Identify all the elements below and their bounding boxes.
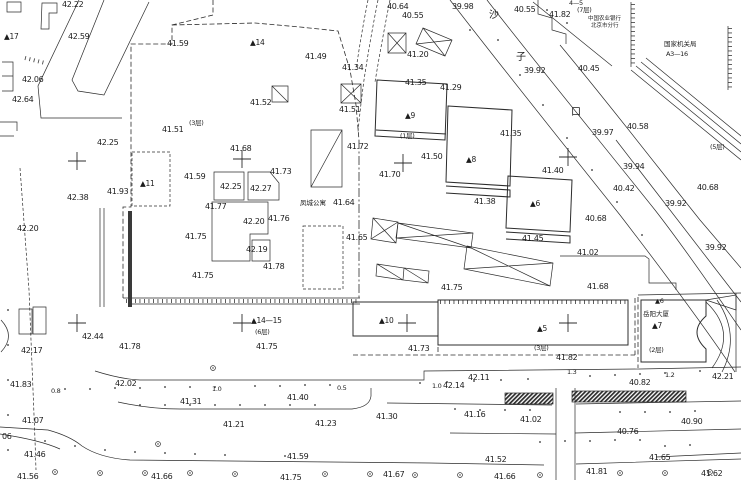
elevation-label: 41.59 xyxy=(184,173,205,181)
elevation-label: 41.46 xyxy=(24,451,45,459)
distance-label: 1.2 xyxy=(665,372,674,379)
building-name-label: 国家机关局 xyxy=(664,41,697,48)
elevation-label: 41.20 xyxy=(407,51,428,59)
elevation-label: 41.82 xyxy=(556,354,577,362)
elevation-label: 41.75 xyxy=(280,474,301,480)
elevation-label: 42.21 xyxy=(712,373,733,381)
elevation-label: 41.75 xyxy=(192,272,213,280)
elevation-label: 41.21 xyxy=(223,421,244,429)
elevation-label: 42.17 xyxy=(21,347,42,355)
elevation-label: 41.93 xyxy=(107,188,128,196)
elevation-label: 40.42 xyxy=(613,185,634,193)
elevation-label: 41.40 xyxy=(287,394,308,402)
elevation-label: 39.94 xyxy=(623,163,644,171)
street-name-char: 沙 xyxy=(489,11,499,21)
elevation-label: 41.16 xyxy=(464,411,485,419)
elevation-label: 39.92 xyxy=(705,244,726,252)
elevation-label: 41.29 xyxy=(440,84,461,92)
elevation-label: 41.73 xyxy=(408,345,429,353)
elevation-label: 41.50 xyxy=(421,153,442,161)
building-number-label: ▲7 xyxy=(652,322,662,330)
elevation-label: 41.23 xyxy=(315,420,336,428)
elevation-label: 42.19 xyxy=(246,246,267,254)
elevation-label: 41.02 xyxy=(577,249,598,257)
distance-label: 1.3 xyxy=(567,369,576,376)
elevation-label: 41.40 xyxy=(542,167,563,175)
building-number-label: ▲6 xyxy=(655,298,664,305)
floor-count-label: (3层) xyxy=(534,345,549,352)
elevation-label: 41.75 xyxy=(441,284,462,292)
floor-count-label: (6层) xyxy=(255,329,270,336)
elevation-label: 41.02 xyxy=(520,416,541,424)
survey-map-canvas: 42.2242.5941.5942.0642.6442.2541.51(3层)▲… xyxy=(0,0,741,480)
elevation-label: 42.02 xyxy=(115,380,136,388)
elevation-label: 42.20 xyxy=(17,225,38,233)
elevation-label: 41.78 xyxy=(263,263,284,271)
elevation-label: 41.65 xyxy=(346,234,367,242)
elevation-label: 41.78 xyxy=(119,343,140,351)
elevation-label: 39.92 xyxy=(524,67,545,75)
elevation-label: 42.14 xyxy=(443,382,464,390)
building-name-label: 中国农业银行 xyxy=(588,17,621,23)
distance-label: 1.0 xyxy=(212,386,221,393)
elevation-label: 40.90 xyxy=(681,418,702,426)
elevation-label: 42.64 xyxy=(12,96,33,104)
elevation-label: 41.31 xyxy=(180,398,201,406)
elevation-label: 40.58 xyxy=(627,123,648,131)
elevation-label: 41.67 xyxy=(383,471,404,479)
elevation-label: 41.49 xyxy=(305,53,326,61)
elevation-label: 41.64 xyxy=(333,199,354,207)
floor-count-label: (7层) xyxy=(577,7,592,14)
floor-count-label: (3层) xyxy=(189,120,204,127)
distance-label: 0.5 xyxy=(337,385,346,392)
elevation-label: 41.34 xyxy=(342,64,363,72)
elevation-label: 42.20 xyxy=(243,218,264,226)
street-name-char: 口 xyxy=(571,108,581,118)
building-number-label: ▲14 xyxy=(250,39,264,47)
elevation-label: 40.55 xyxy=(402,12,423,20)
elevation-label: 40.55 xyxy=(514,6,535,14)
elevation-label: 06 xyxy=(2,433,12,441)
building-name-label: 凤城公寓 xyxy=(300,200,326,207)
elevation-label: 42.38 xyxy=(67,194,88,202)
elevation-label: 41.83 xyxy=(10,381,31,389)
elevation-label: 40.68 xyxy=(585,215,606,223)
elevation-label: 41.70 xyxy=(379,171,400,179)
elevation-label: 41.30 xyxy=(376,413,397,421)
elevation-label: 41.45 xyxy=(522,235,543,243)
elevation-label: 41.52 xyxy=(250,99,271,107)
building-name-label: 岳阳大厦 xyxy=(643,311,669,318)
building-number-label: ▲9 xyxy=(405,112,415,120)
elevation-label: 42.27 xyxy=(250,185,271,193)
elevation-label: 41.68 xyxy=(230,145,251,153)
elevation-label: 41.81 xyxy=(586,468,607,476)
building-name-label: 北京市分行 xyxy=(591,24,619,30)
floor-count-label: (1层) xyxy=(400,133,415,140)
elevation-label: 42.06 xyxy=(22,76,43,84)
elevation-label: 40.64 xyxy=(387,3,408,11)
elevation-label: 42.25 xyxy=(220,183,241,191)
elevation-label: 41.35 xyxy=(500,130,521,138)
elevation-label: 41.65 xyxy=(649,454,670,462)
elevation-label: 41.59 xyxy=(167,40,188,48)
street-name-char: 子 xyxy=(516,53,526,63)
elevation-label: 41.66 xyxy=(151,473,172,480)
elevation-label: 42.44 xyxy=(82,333,103,341)
building-number-label: ▲11 xyxy=(140,180,154,188)
building-number-label: A3—16 xyxy=(666,51,688,58)
elevation-label: 40.68 xyxy=(697,184,718,192)
elevation-label: 41.77 xyxy=(205,203,226,211)
elevation-label: 41.52 xyxy=(485,456,506,464)
elevation-label: 41.75 xyxy=(185,233,206,241)
elevation-label: 41.35 xyxy=(405,79,426,87)
elevation-label: 41.66 xyxy=(494,473,515,480)
elevation-label: 41.73 xyxy=(270,168,291,176)
building-number-label: ▲10 xyxy=(379,317,393,325)
elevation-label: 39.98 xyxy=(452,3,473,11)
elevation-label: 40.76 xyxy=(617,428,638,436)
building-number-label: ▲17 xyxy=(4,33,18,41)
floor-count-label: (2层) xyxy=(649,347,664,354)
elevation-label: 40.45 xyxy=(578,65,599,73)
elevation-label: 41.68 xyxy=(587,283,608,291)
elevation-label: 41.56 xyxy=(17,473,38,480)
elevation-label: 41.07 xyxy=(22,417,43,425)
map-labels-layer: 42.2242.5941.5942.0642.6442.2541.51(3层)▲… xyxy=(0,0,741,480)
elevation-label: 41.62 xyxy=(701,470,722,478)
building-number-label: ▲8 xyxy=(466,156,476,164)
elevation-label: 40.82 xyxy=(629,379,650,387)
building-number-label: ▲14—15 xyxy=(251,317,282,325)
elevation-label: 42.11 xyxy=(468,374,489,382)
building-number-label: ▲6 xyxy=(530,200,540,208)
elevation-label: 39.97 xyxy=(592,129,613,137)
elevation-label: 41.82 xyxy=(549,11,570,19)
building-number-label: ▲5 xyxy=(537,325,547,333)
elevation-label: 41.51 xyxy=(162,126,183,134)
distance-label: 1.0 xyxy=(432,383,441,390)
elevation-label: 41.59 xyxy=(287,453,308,461)
floor-count-label: (5层) xyxy=(710,144,725,151)
elevation-label: 41.72 xyxy=(347,143,368,151)
elevation-label: 41.38 xyxy=(474,198,495,206)
elevation-label: 41.75 xyxy=(256,343,277,351)
elevation-label: 41.51 xyxy=(339,106,360,114)
elevation-label: 42.59 xyxy=(68,33,89,41)
elevation-label: 42.25 xyxy=(97,139,118,147)
elevation-label: 41.76 xyxy=(268,215,289,223)
distance-label: 0.8 xyxy=(51,388,60,395)
elevation-label: 42.22 xyxy=(62,1,83,9)
elevation-label: 39.92 xyxy=(665,200,686,208)
